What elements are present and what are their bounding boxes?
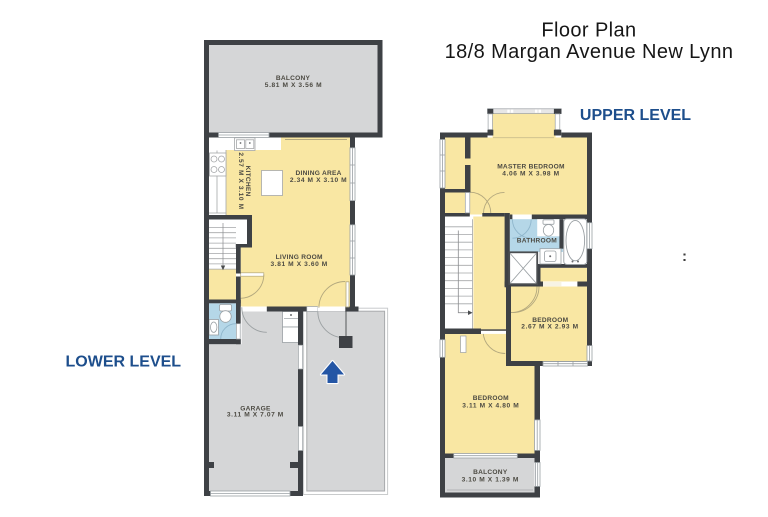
svg-text:2.57 M X 3.10 M: 2.57 M X 3.10 M — [237, 152, 244, 209]
svg-text:2.67 M X 2.93 M: 2.67 M X 2.93 M — [521, 324, 578, 331]
svg-text:2.34 M X 3.10 M: 2.34 M X 3.10 M — [290, 177, 347, 184]
svg-text:18/8 Margan Avenue New Lynn: 18/8 Margan Avenue New Lynn — [445, 41, 734, 63]
svg-text:3.11 M X 7.07 M: 3.11 M X 7.07 M — [227, 412, 284, 419]
svg-text::: : — [682, 248, 687, 265]
svg-text:LOWER LEVEL: LOWER LEVEL — [66, 354, 182, 371]
svg-text:BALCONY: BALCONY — [473, 469, 508, 476]
svg-text:3.81 M X 3.60 M: 3.81 M X 3.60 M — [271, 261, 328, 268]
svg-text:UPPER LEVEL: UPPER LEVEL — [580, 107, 691, 124]
svg-text:4.06 M X 3.98 M: 4.06 M X 3.98 M — [502, 171, 559, 178]
svg-text:3.11 M X 4.80 M: 3.11 M X 4.80 M — [462, 403, 519, 410]
svg-text:BATHROOM: BATHROOM — [517, 238, 558, 245]
svg-text:MASTER BEDROOM: MASTER BEDROOM — [497, 163, 565, 170]
svg-text:BEDROOM: BEDROOM — [473, 395, 509, 402]
svg-text:3.10 M X 1.39 M: 3.10 M X 1.39 M — [462, 477, 519, 484]
svg-text:5.81 M X 3.56 M: 5.81 M X 3.56 M — [265, 82, 322, 89]
svg-text:Floor Plan: Floor Plan — [541, 20, 636, 42]
